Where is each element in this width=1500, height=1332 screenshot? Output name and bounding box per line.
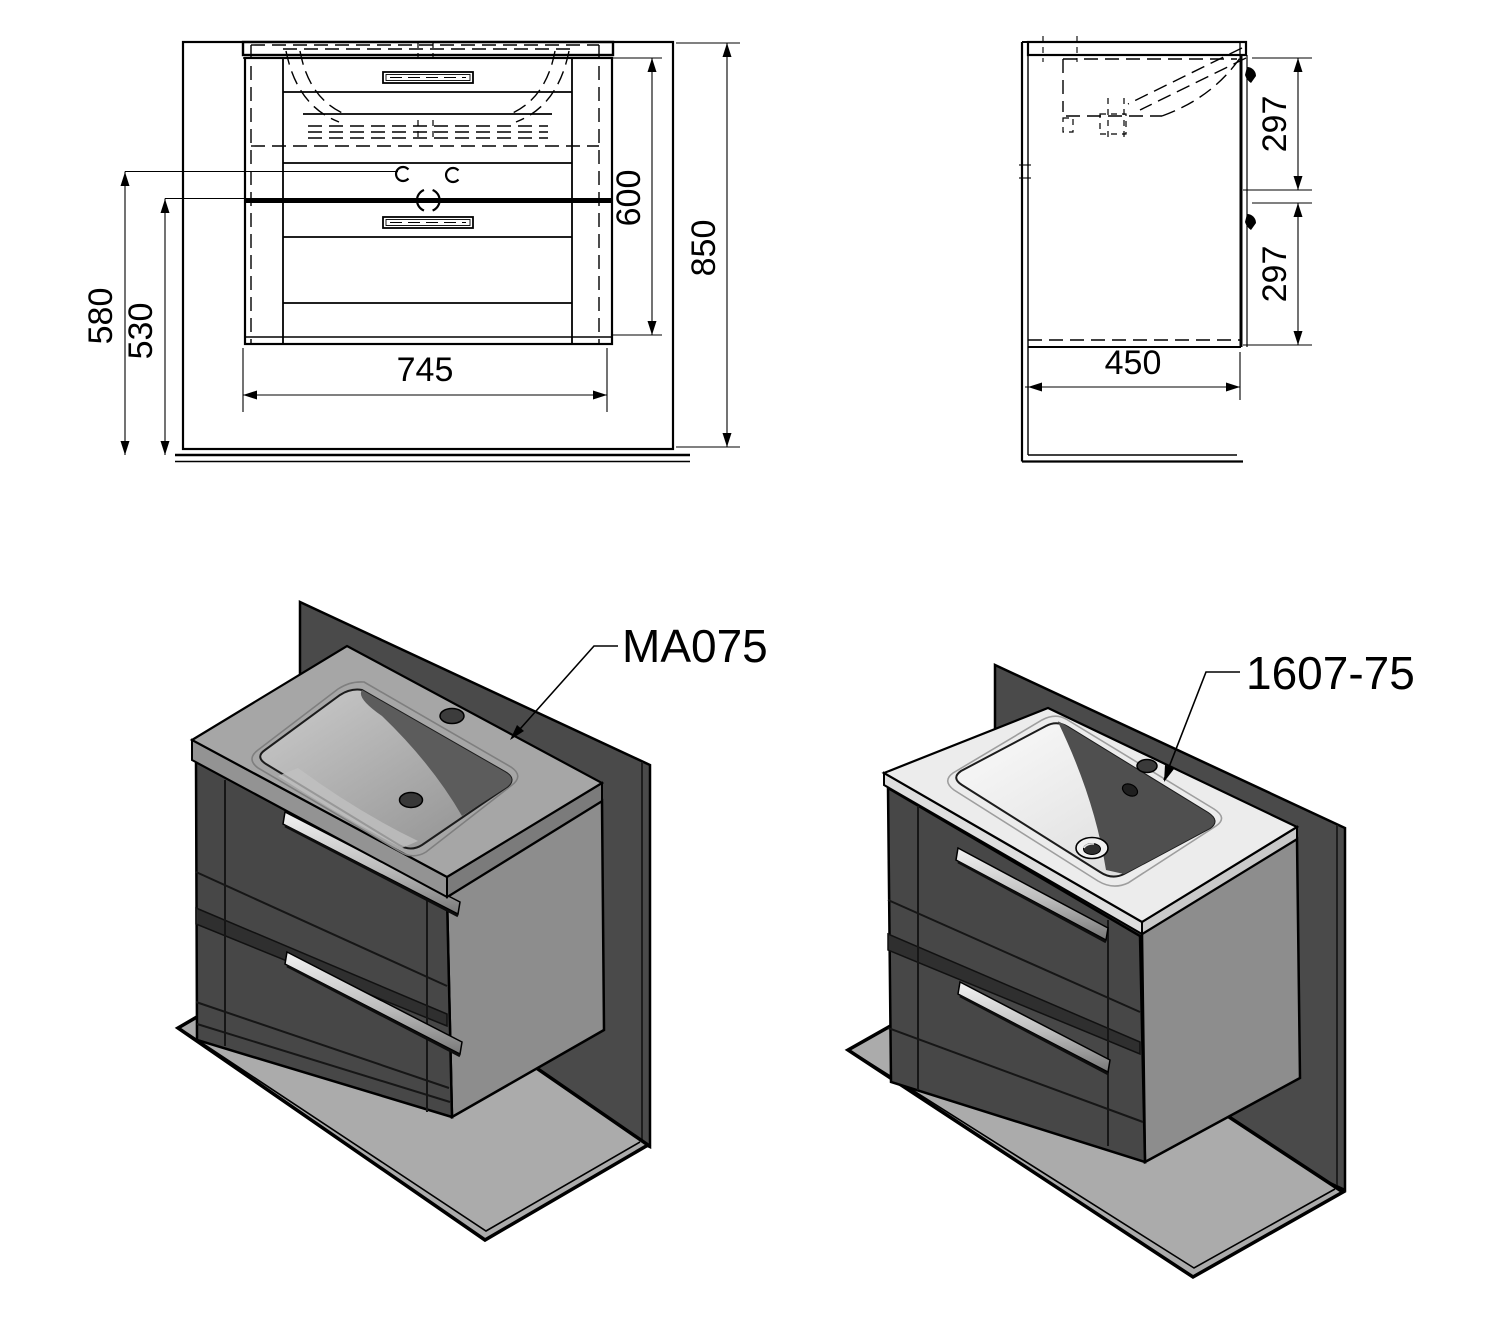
- product-label-1607-75: 1607-75: [1246, 647, 1415, 699]
- render-right-tap-hole: [1137, 760, 1157, 773]
- dim-label-530: 530: [122, 303, 160, 360]
- render-right-1607-75: 1607-75: [848, 647, 1415, 1277]
- dim-label-580: 580: [82, 288, 120, 345]
- dim-label-600: 600: [610, 170, 648, 227]
- front-fixing-symbols: [396, 167, 458, 211]
- render-right-drain: [1076, 838, 1108, 859]
- dim-label-745: 745: [397, 351, 454, 389]
- dim-label-450: 450: [1105, 344, 1162, 382]
- render-left-tap-hole: [440, 709, 464, 724]
- side-view: 297 297 450: [1019, 36, 1312, 462]
- render-left-drain-hole: [400, 793, 423, 808]
- render-left-ma075: MA075: [178, 602, 768, 1240]
- technical-drawing-page: 580 530 745 600: [0, 0, 1500, 1332]
- drawing-canvas: 580 530 745 600: [0, 0, 1500, 1332]
- dim-label-297-upper: 297: [1256, 96, 1294, 153]
- front-view: 580 530 745 600: [82, 42, 740, 462]
- dim-label-297-lower: 297: [1256, 246, 1294, 303]
- side-countertop: [1028, 42, 1246, 55]
- side-basin-hidden-outline: [1063, 48, 1246, 138]
- dim-label-850: 850: [685, 220, 723, 277]
- front-handle-upper: [383, 72, 473, 83]
- front-dimensions: 580 530 745 600: [82, 43, 740, 455]
- product-label-ma075: MA075: [622, 620, 768, 672]
- front-handle-lower: [383, 217, 473, 228]
- side-dimensions: 297 297 450: [1025, 58, 1312, 400]
